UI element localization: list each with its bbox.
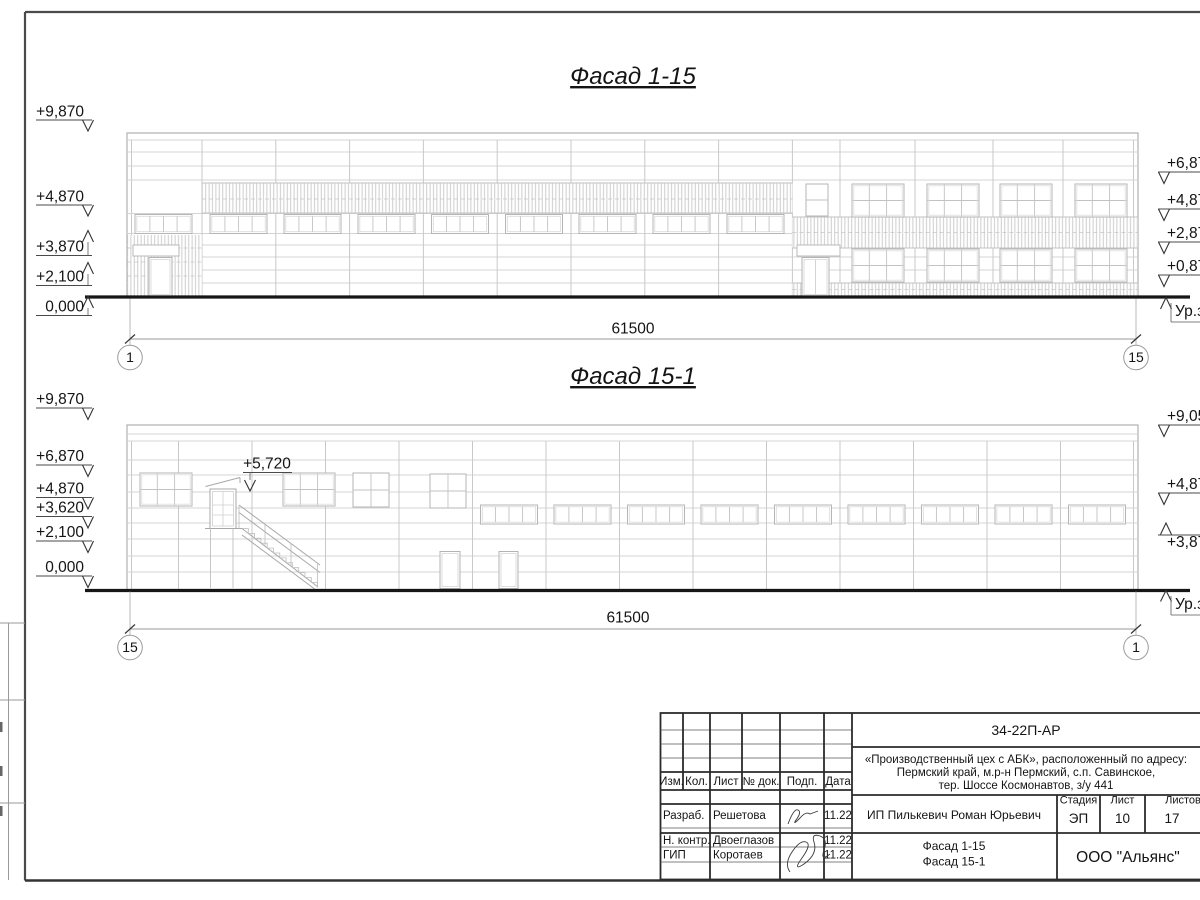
level-mark: +2,100 bbox=[36, 524, 94, 553]
level-mark: +9,870 bbox=[36, 391, 94, 420]
facade2-levels-right: +9,05 +4,87 +3,87 Ур.зе bbox=[1158, 408, 1200, 615]
level-text: +9,870 bbox=[36, 391, 84, 408]
name: Двоеглазов bbox=[713, 835, 774, 847]
window bbox=[284, 215, 341, 234]
level-text: +0,87 bbox=[1167, 258, 1200, 275]
level-text: Ур.зе bbox=[1175, 596, 1200, 613]
sheet-value: 10 bbox=[1115, 811, 1130, 826]
change-table-header: Изм. Кол. Лист № док. Подп. Дата bbox=[659, 776, 851, 788]
organization-name: ООО "Альянс" bbox=[1076, 849, 1180, 866]
stage-label: Стадия bbox=[1060, 795, 1098, 807]
facade1-levels-left: +9,870 +4,870 +3,870 +2,100 0,000 bbox=[36, 104, 94, 316]
window bbox=[927, 184, 979, 217]
window bbox=[701, 505, 758, 524]
facade2-strip-windows bbox=[481, 505, 1126, 524]
level-text: +2,100 bbox=[36, 524, 84, 541]
window bbox=[210, 215, 267, 234]
level-mark: +9,05 bbox=[1158, 408, 1200, 437]
window bbox=[432, 215, 489, 234]
window bbox=[1000, 184, 1052, 217]
level-text: +3,87 bbox=[1167, 534, 1200, 551]
level-mark: +2,100 bbox=[36, 263, 94, 286]
role: ГИП bbox=[663, 850, 686, 862]
door bbox=[149, 258, 172, 297]
level-mark: +4,87 bbox=[1158, 192, 1200, 221]
level-text: +6,87 bbox=[1167, 155, 1200, 172]
role: Разраб. bbox=[663, 810, 704, 822]
window bbox=[554, 505, 611, 524]
level-text: +4,870 bbox=[36, 189, 84, 206]
header-cell: Лист bbox=[714, 776, 740, 788]
door bbox=[440, 552, 460, 589]
sheets-label: Листов bbox=[1165, 795, 1200, 807]
facade2-building bbox=[85, 425, 1190, 591]
level-mark: +4,870 bbox=[36, 189, 94, 217]
window bbox=[506, 215, 563, 234]
stage-block: Стадия Лист Листов ЭП 10 17 bbox=[1060, 795, 1200, 827]
client-name: ИП Пилькевич Роман Юрьевич bbox=[867, 808, 1041, 822]
level-text: +5,720 bbox=[243, 456, 291, 473]
window bbox=[848, 505, 905, 524]
level-mark: +6,87 bbox=[1158, 155, 1200, 184]
window bbox=[1069, 505, 1126, 524]
axis-label: 15 bbox=[1128, 349, 1144, 365]
window bbox=[140, 473, 192, 506]
sheet-label: Лист bbox=[1111, 795, 1135, 807]
window bbox=[135, 215, 192, 234]
level-text: +3,620 bbox=[36, 500, 84, 517]
doc-number: 34-22П-АР bbox=[991, 722, 1060, 738]
axis-label: 15 bbox=[122, 639, 138, 655]
ground-level-label: Ур.зе bbox=[1161, 298, 1200, 323]
signature-row: Н. контр. Двоеглазов 11.22 bbox=[663, 835, 852, 847]
level-mark: 0,000 bbox=[36, 297, 94, 316]
window bbox=[1000, 249, 1052, 282]
facade2-title: Фасад 15-1 bbox=[570, 363, 696, 390]
level-text: +2,100 bbox=[36, 269, 84, 286]
facade1-left-entrance bbox=[128, 235, 203, 297]
window bbox=[852, 184, 904, 217]
level-mark: +0,87 bbox=[1158, 258, 1200, 287]
facade1-title: Фасад 1-15 bbox=[570, 63, 696, 90]
window bbox=[922, 505, 979, 524]
header-cell: Дата bbox=[825, 776, 851, 788]
project-line: Пермский край, м.р-н Пермский, с.п. Сави… bbox=[897, 767, 1155, 779]
facade-1-15: Фасад 1-15 bbox=[36, 63, 1200, 370]
window bbox=[653, 215, 710, 234]
level-text: +4,87 bbox=[1167, 192, 1200, 209]
window bbox=[353, 473, 389, 507]
level-mark: +9,870 bbox=[36, 104, 94, 132]
project-line: «Производственный цех с АБК», расположен… bbox=[865, 754, 1187, 766]
sheet-name-line: Фасад 1-15 bbox=[923, 839, 986, 853]
door bbox=[499, 552, 518, 589]
window bbox=[430, 474, 466, 508]
canopy bbox=[797, 245, 840, 256]
level-mark: +4,87 bbox=[1158, 476, 1200, 505]
level-text: 0,000 bbox=[45, 299, 84, 316]
project-name: «Производственный цех с АБК», расположен… bbox=[865, 754, 1187, 792]
window bbox=[358, 215, 415, 234]
header-cell: Подп. bbox=[787, 776, 818, 788]
window bbox=[1075, 184, 1127, 217]
level-text: +9,870 bbox=[36, 104, 84, 121]
window bbox=[481, 505, 538, 524]
left-margin-table bbox=[0, 623, 25, 880]
level-text: +3,870 bbox=[36, 239, 84, 256]
facade2-dimension: 61500 15 1 bbox=[118, 592, 1149, 660]
header-cell: Изм. bbox=[659, 776, 684, 788]
facade1-building bbox=[85, 133, 1190, 297]
header-cell: № док. bbox=[743, 776, 780, 788]
canopy bbox=[133, 245, 179, 256]
level-text: +4,87 bbox=[1167, 476, 1200, 493]
window bbox=[995, 505, 1052, 524]
date: 11.22 bbox=[824, 835, 852, 847]
signature-row: Разраб. Решетова 11.22 bbox=[663, 810, 852, 822]
facade2-levels-left: +9,870 +6,870 +4,870 +3,620 +2,100 0,000 bbox=[36, 391, 94, 588]
signature-scribble bbox=[788, 810, 818, 824]
window bbox=[927, 249, 979, 282]
stage-value: ЭП bbox=[1069, 811, 1088, 826]
level-mark: 0,000 bbox=[36, 559, 94, 588]
dimension-text: 61500 bbox=[606, 610, 649, 627]
name: Решетова bbox=[713, 810, 766, 822]
level-mark: +3,87 bbox=[1158, 523, 1200, 551]
facade-15-1: Фасад 15-1 bbox=[36, 363, 1200, 660]
level-text: 0,000 bbox=[45, 559, 84, 576]
title-block: Изм. Кол. Лист № док. Подп. Дата 34-22П-… bbox=[659, 713, 1200, 880]
ground-level-label: Ур.зе bbox=[1161, 591, 1200, 616]
level-mark: +2,87 bbox=[1158, 225, 1200, 254]
window bbox=[628, 505, 685, 524]
level-text: +6,870 bbox=[36, 448, 84, 465]
date: 11.22 bbox=[824, 810, 852, 822]
level-text: +2,87 bbox=[1167, 225, 1200, 242]
facade1-dimension: 61500 1 15 bbox=[118, 299, 1149, 370]
level-mark: +6,870 bbox=[36, 448, 94, 477]
window bbox=[579, 215, 636, 234]
window bbox=[727, 215, 784, 234]
window bbox=[852, 249, 904, 282]
facade1-cladding-band bbox=[202, 183, 792, 213]
sheet-name-line: Фасад 15-1 bbox=[923, 855, 986, 869]
level-text: +9,05 bbox=[1167, 408, 1200, 425]
level-mark: +3,870 bbox=[36, 231, 94, 256]
sheet-name: Фасад 1-15 Фасад 15-1 bbox=[923, 839, 986, 869]
drawing-sheet: Фасад 1-15 bbox=[0, 0, 1200, 900]
name: Коротаев bbox=[713, 850, 763, 862]
level-text: Ур.зе bbox=[1175, 303, 1200, 320]
sheets-value: 17 bbox=[1164, 811, 1179, 826]
dimension-text: 61500 bbox=[611, 321, 654, 338]
level-text: +4,870 bbox=[36, 481, 84, 498]
window-above-door bbox=[806, 184, 828, 216]
window bbox=[283, 473, 335, 506]
axis-label: 1 bbox=[126, 349, 134, 365]
axis-label: 1 bbox=[1132, 639, 1140, 655]
project-line: тер. Шоссе Космонавтов, з/у 441 bbox=[939, 780, 1114, 792]
header-cell: Кол. bbox=[685, 776, 708, 788]
window bbox=[1075, 249, 1127, 282]
window bbox=[775, 505, 832, 524]
facade1-strip-windows bbox=[135, 215, 784, 234]
role: Н. контр. bbox=[663, 835, 710, 847]
